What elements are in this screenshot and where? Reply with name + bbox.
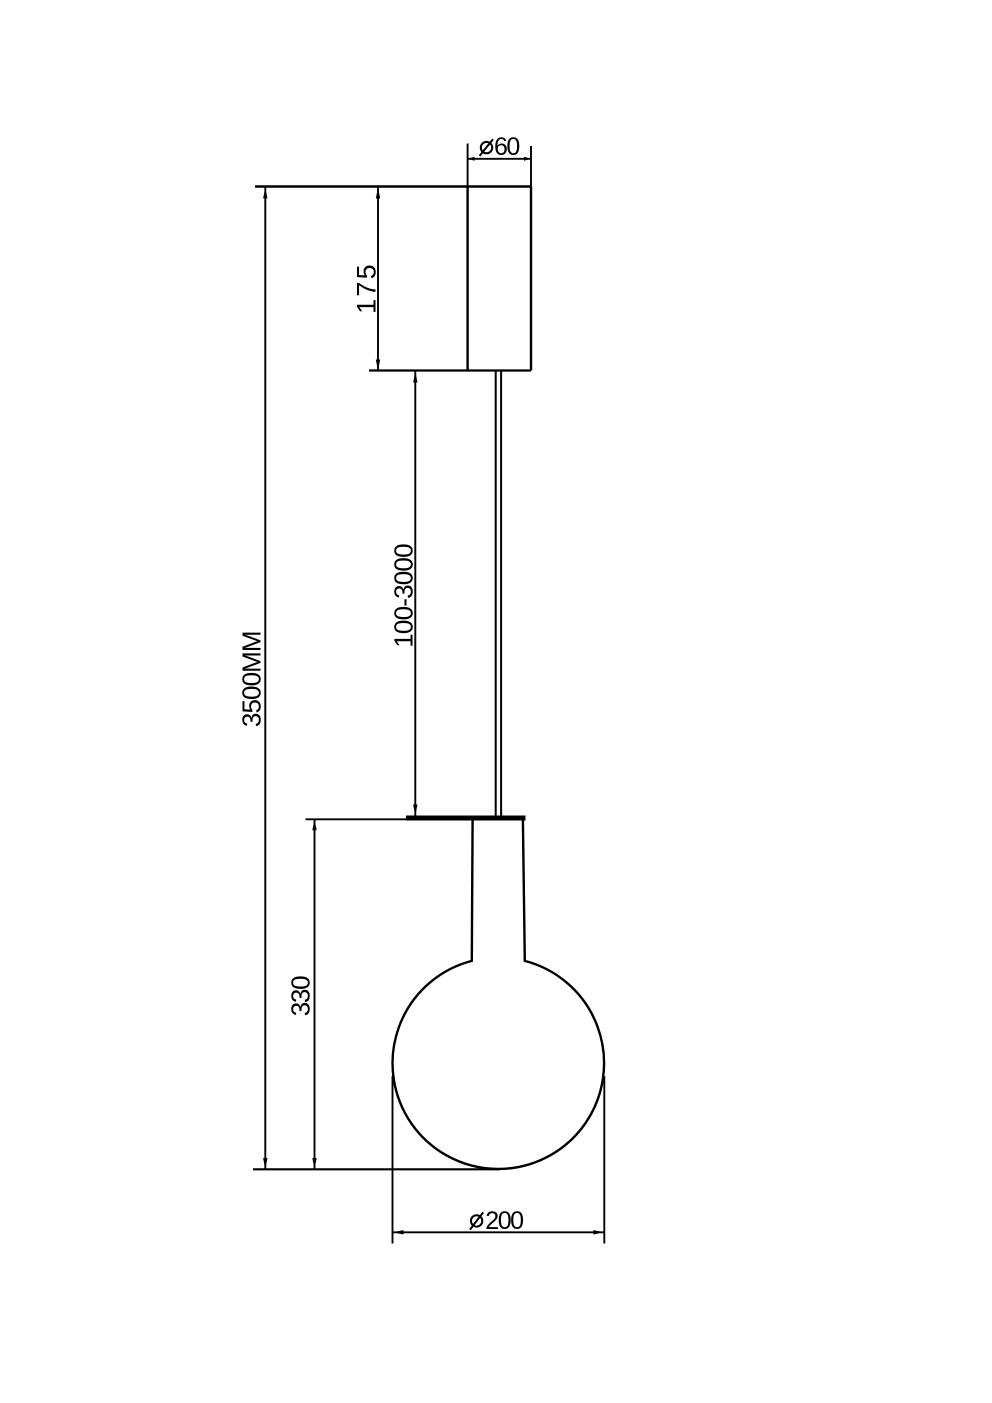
svg-text:60: 60 (494, 133, 519, 161)
svg-text:175: 175 (351, 262, 381, 314)
svg-text:100-3000: 100-3000 (389, 544, 419, 648)
svg-text:200: 200 (485, 1207, 523, 1235)
svg-text:330: 330 (286, 976, 316, 1016)
svg-text:3500MM: 3500MM (236, 631, 266, 727)
